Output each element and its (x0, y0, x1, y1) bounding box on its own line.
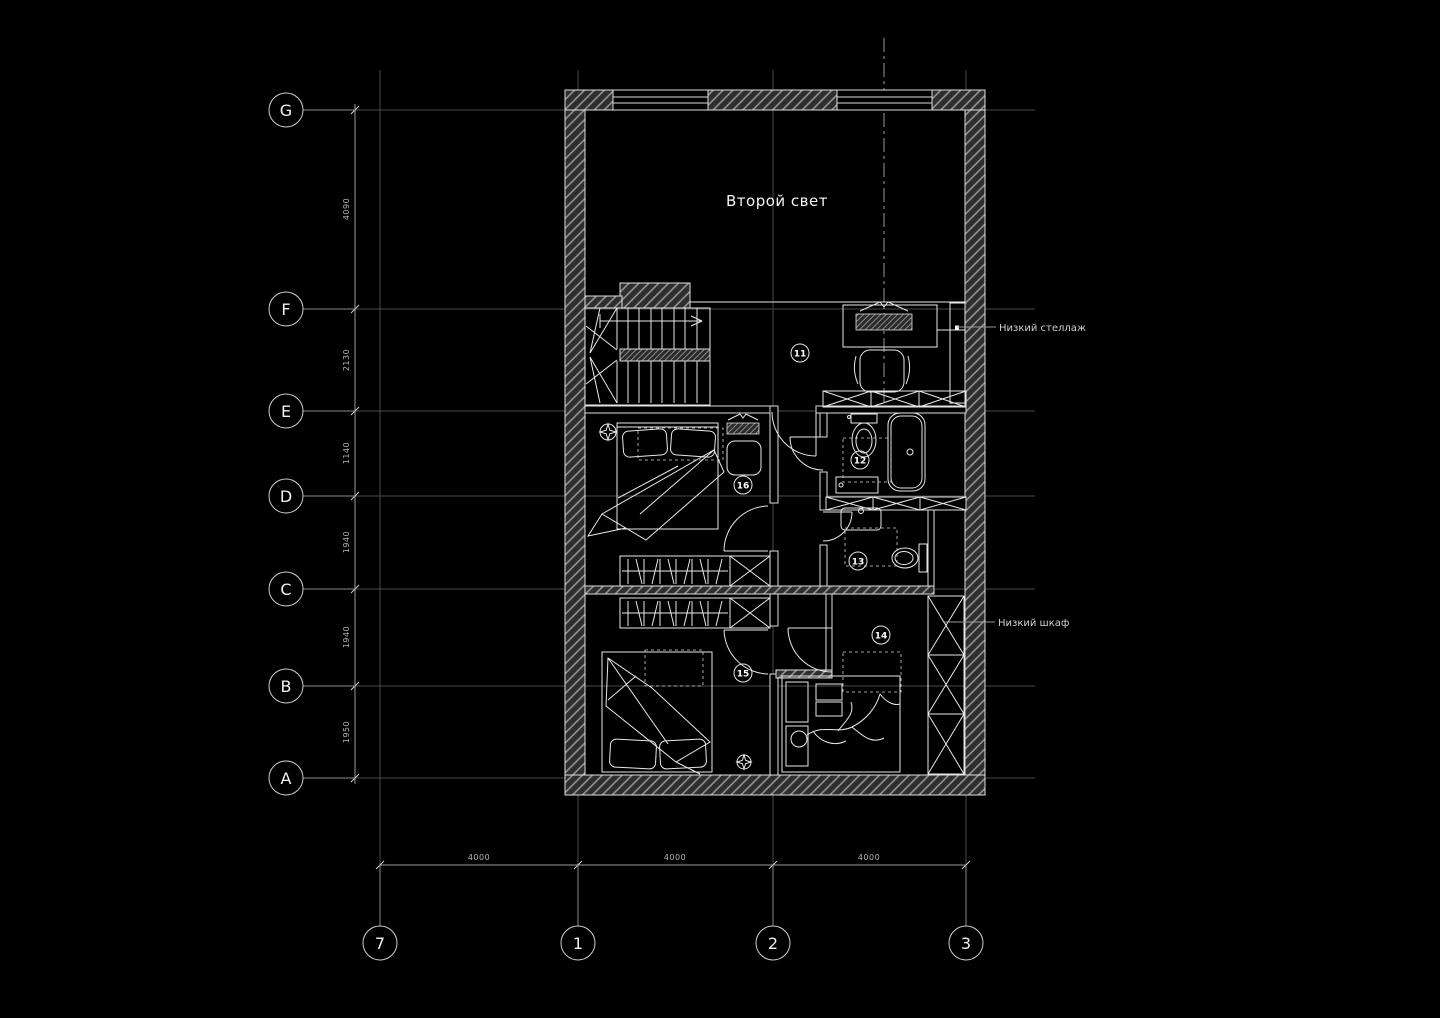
pillow (622, 428, 668, 457)
dim-1-2: 4000 (664, 853, 686, 862)
blanket-16 (588, 450, 724, 540)
toilet-tank (851, 414, 877, 423)
corridor (772, 412, 816, 456)
mirror-icon (728, 414, 758, 420)
dim-C-B: 1940 (342, 626, 351, 648)
dim-F-E: 2130 (342, 349, 351, 371)
door-12 (790, 437, 823, 470)
wall-shelf (950, 303, 965, 403)
svg-text:16: 16 (737, 482, 750, 492)
bedroom-16 (588, 414, 770, 586)
axis-label-B: B (281, 677, 292, 696)
bed-14 (782, 676, 900, 772)
bathroom-12 (790, 413, 925, 493)
door-14 (788, 628, 832, 672)
blanket-15 (606, 658, 710, 774)
room-bubble-14: 14 (872, 626, 890, 644)
dim-2-3: 4000 (858, 853, 880, 862)
study-room (823, 302, 966, 407)
door-15 (724, 630, 768, 674)
door-13 (823, 512, 852, 541)
door-16 (724, 506, 768, 551)
dim-D-C: 1940 (342, 531, 351, 553)
room-title: Второй свет (726, 192, 828, 210)
ceiling-light-icon (600, 424, 616, 440)
stair-pier (620, 283, 690, 308)
room-bubble-12: 12 (851, 451, 869, 469)
floor-plan-drawing: 4090 2130 1140 1940 1940 1950 4000 4000 … (0, 0, 1440, 1018)
room-numbers: 11 12 13 14 15 16 (734, 344, 890, 682)
desk-lamp-icon (860, 302, 908, 311)
bathroom-13 (823, 508, 927, 572)
axis-label-3: 3 (961, 934, 971, 953)
bathtub-drain (907, 449, 913, 455)
ceiling-light-icon (737, 755, 751, 769)
svg-text:12: 12 (854, 457, 867, 467)
bed-15 (602, 652, 712, 772)
bedroom-14 (782, 596, 964, 774)
dim-7-1: 4000 (468, 853, 490, 862)
wardrobe-15 (620, 598, 770, 628)
low-shelf-band (823, 391, 966, 407)
chair-16 (727, 441, 761, 475)
room-bubble-15: 15 (734, 664, 752, 682)
axis-label-7: 7 (375, 934, 385, 953)
room-bubble-13: 13 (849, 552, 867, 570)
door-corridor (772, 412, 816, 456)
tall-wardrobe (928, 596, 964, 774)
axis-label-F: F (281, 300, 290, 319)
axis-label-G: G (280, 101, 292, 120)
wardrobe-16 (620, 556, 770, 586)
dim-E-D: 1140 (342, 442, 351, 464)
svg-text:14: 14 (875, 632, 888, 642)
svg-text:13: 13 (852, 558, 865, 568)
washbasin (841, 508, 881, 530)
person-figure (791, 694, 900, 747)
room-bubble-16: 16 (734, 476, 752, 494)
floor-plan-canvas: 4090 2130 1140 1940 1940 1950 4000 4000 … (0, 0, 1440, 1018)
window-1 (613, 90, 708, 110)
room-bubble-11: 11 (791, 344, 809, 362)
svg-text:15: 15 (737, 670, 750, 680)
axis-label-A: A (281, 769, 292, 788)
bath-cabinet (836, 477, 878, 493)
svg-text:11: 11 (794, 350, 807, 360)
toilet-tank (919, 544, 927, 572)
desk-keyboard (856, 314, 912, 330)
window-2 (837, 90, 932, 110)
axis-label-C: C (280, 580, 291, 599)
desk-chair (860, 350, 904, 392)
toilet-bowl (892, 548, 918, 568)
svg-text:Низкий шкаф: Низкий шкаф (998, 618, 1069, 629)
axis-label-1: 1 (573, 934, 583, 953)
stair-winders (586, 308, 617, 403)
axis-label-E: E (281, 402, 291, 421)
pillow (609, 739, 656, 769)
svg-text:Низкий стеллаж: Низкий стеллаж (999, 323, 1086, 334)
col-axes: 7 1 2 3 (363, 865, 983, 960)
dim-B-A: 1950 (342, 721, 351, 743)
axis-label-D: D (280, 487, 292, 506)
dresser-16 (727, 423, 759, 434)
staircase (585, 308, 710, 405)
stair-rail (620, 349, 710, 361)
annotation-low-cabinet: Низкий шкаф (944, 618, 1069, 629)
axis-label-2: 2 (768, 934, 778, 953)
dim-G-F: 4090 (342, 198, 351, 220)
